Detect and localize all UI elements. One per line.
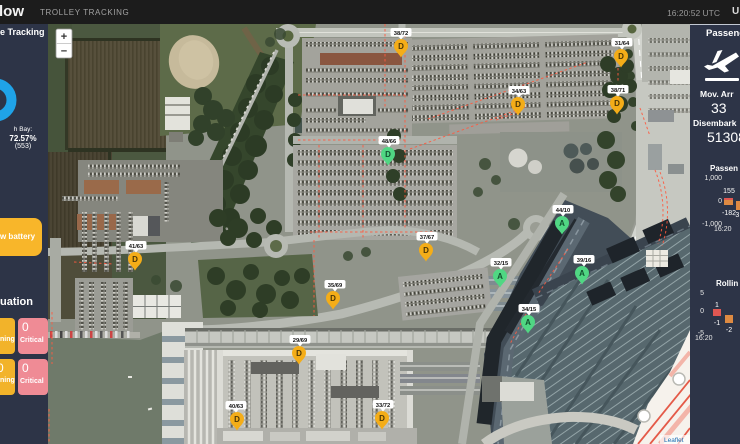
- svg-text:−: −: [61, 46, 67, 58]
- svg-text:34/63: 34/63: [512, 89, 527, 95]
- svg-text:D: D: [132, 255, 138, 264]
- svg-text:31/64: 31/64: [615, 41, 630, 47]
- svg-text:35/69: 35/69: [328, 283, 343, 289]
- svg-text:A: A: [579, 269, 585, 278]
- svg-text:32/15: 32/15: [494, 261, 509, 267]
- svg-text:+: +: [61, 31, 67, 43]
- svg-text:D: D: [618, 52, 624, 61]
- svg-text:37/67: 37/67: [420, 235, 435, 241]
- svg-text:44/10: 44/10: [556, 208, 571, 214]
- svg-text:A: A: [559, 219, 565, 228]
- svg-text:A: A: [525, 318, 531, 327]
- svg-text:A: A: [497, 272, 503, 281]
- svg-text:Leaflet: Leaflet: [664, 437, 684, 444]
- svg-text:D: D: [234, 415, 240, 424]
- svg-text:40/63: 40/63: [229, 404, 244, 410]
- svg-text:D: D: [614, 99, 620, 108]
- svg-text:D: D: [515, 100, 521, 109]
- svg-text:D: D: [398, 42, 404, 51]
- svg-text:48/66: 48/66: [382, 139, 397, 145]
- svg-text:29/69: 29/69: [293, 338, 308, 344]
- svg-text:D: D: [379, 414, 385, 423]
- svg-text:D: D: [423, 246, 429, 255]
- svg-text:41/63: 41/63: [129, 244, 144, 250]
- svg-text:38/72: 38/72: [394, 31, 409, 37]
- svg-text:39/16: 39/16: [577, 258, 592, 264]
- svg-text:D: D: [296, 349, 302, 358]
- svg-text:D: D: [330, 294, 336, 303]
- svg-text:38/71: 38/71: [611, 88, 626, 94]
- svg-text:D: D: [385, 150, 391, 159]
- svg-text:34/15: 34/15: [522, 307, 537, 313]
- svg-text:33/72: 33/72: [376, 403, 391, 409]
